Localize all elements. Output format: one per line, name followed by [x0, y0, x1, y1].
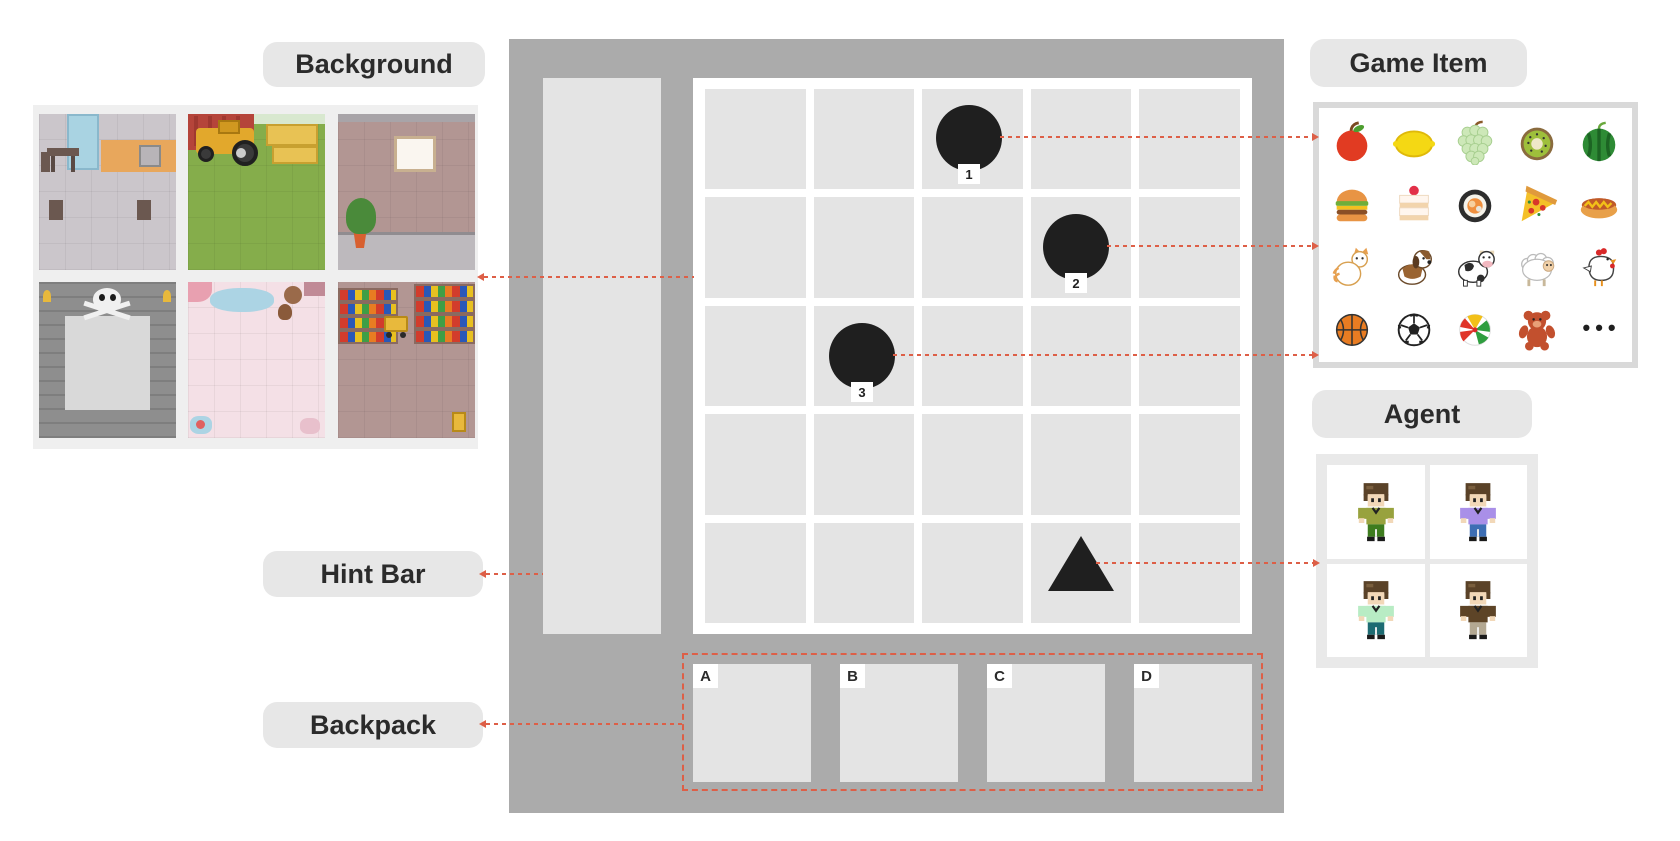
thumbnail-kitchen-dining-room[interactable] [39, 114, 176, 270]
hint-bar-label: Hint Bar [263, 551, 483, 597]
beach-ball-icon [1452, 305, 1498, 351]
item-hot-dog[interactable] [1568, 173, 1630, 235]
shelf-unit [414, 284, 475, 344]
board-cell[interactable] [814, 197, 915, 297]
hamburger-icon [1329, 181, 1375, 227]
item-soccer-ball[interactable] [1383, 297, 1445, 359]
board-cell[interactable] [1139, 197, 1240, 297]
item-basketball[interactable] [1321, 297, 1383, 359]
item-cow[interactable] [1445, 235, 1507, 297]
marker-circle-2[interactable] [1043, 214, 1109, 280]
board-cell[interactable] [1031, 89, 1132, 189]
dog-icon [1391, 243, 1437, 289]
grapes-icon [1452, 119, 1498, 165]
kiwi-icon [1514, 119, 1560, 165]
toy-shelf [304, 282, 325, 296]
board-cell[interactable] [1031, 414, 1132, 514]
item-cat[interactable] [1321, 235, 1383, 297]
window [394, 136, 436, 172]
dining-table [47, 148, 79, 156]
slot-d-tag: D [1134, 664, 1159, 688]
board-cell[interactable] [922, 414, 1023, 514]
cart-wheel [386, 332, 392, 338]
chair [137, 200, 151, 220]
backpack-slot-a[interactable]: A [693, 664, 811, 782]
cat-icon [1329, 243, 1375, 289]
agent-boy-brown-shirt[interactable] [1430, 564, 1528, 658]
thumbnail-room-wall-with-plant[interactable] [338, 114, 475, 270]
item-teddy-bear[interactable] [1506, 297, 1568, 359]
item-more[interactable]: ••• [1568, 297, 1630, 359]
item-cake[interactable] [1383, 173, 1445, 235]
board-cell[interactable] [705, 306, 806, 406]
item-chicken[interactable] [1568, 235, 1630, 297]
background-picker-panel [33, 105, 478, 449]
thumbnail-farm-with-tractor[interactable] [188, 114, 325, 270]
play-pond [210, 288, 274, 312]
chair [49, 200, 63, 220]
shopping-cart [384, 316, 408, 332]
arrowhead-right-icon [1312, 351, 1319, 359]
apple-icon [1329, 119, 1375, 165]
arrowhead-left-icon [479, 570, 486, 578]
boy-sprite-icon [1345, 479, 1407, 545]
arrowhead-right-icon [1313, 559, 1320, 567]
floor-tiles [39, 114, 176, 270]
soccer-ball-icon [1391, 305, 1437, 351]
thumbnail-dungeon-with-skull[interactable] [39, 282, 176, 438]
item-grapes[interactable] [1445, 111, 1507, 173]
agent-boy-green-shirt[interactable] [1327, 465, 1425, 559]
marker-circle-3[interactable] [829, 323, 895, 389]
tractor-wheel [198, 146, 214, 162]
board-cell[interactable] [922, 197, 1023, 297]
board-cell[interactable] [1139, 414, 1240, 514]
agent-label: Agent [1312, 390, 1532, 438]
agent-boy-mint-shirt[interactable] [1327, 564, 1425, 658]
toy-bunny [300, 418, 320, 434]
backpack-label: Backpack [263, 702, 483, 748]
item-pizza[interactable] [1506, 173, 1568, 235]
slot-a-tag: A [693, 664, 718, 688]
connector-background-to-board [484, 276, 694, 278]
marker-3-tag: 3 [851, 382, 873, 402]
arrowhead-left-icon [477, 273, 484, 281]
item-lemon[interactable] [1383, 111, 1445, 173]
cart-wheel [400, 332, 406, 338]
toy-ball [196, 420, 205, 429]
connector-marker1-to-items [1000, 136, 1312, 138]
arrowhead-right-icon [1312, 133, 1319, 141]
hint-bar [543, 78, 661, 634]
slot-c-tag: C [987, 664, 1012, 688]
agent-panel [1316, 454, 1538, 668]
board-cell[interactable] [922, 523, 1023, 623]
toy-doll [278, 304, 292, 320]
game-item-panel: ••• [1313, 102, 1638, 368]
sign-board [452, 412, 466, 432]
item-watermelon[interactable] [1568, 111, 1630, 173]
backpack-slot-b[interactable]: B [840, 664, 958, 782]
sheep-icon [1514, 243, 1560, 289]
connector-marker2-to-items [1107, 245, 1312, 247]
item-beach-ball[interactable] [1445, 297, 1507, 359]
arrowhead-right-icon [1312, 242, 1319, 250]
item-sheep[interactable] [1506, 235, 1568, 297]
arrowhead-left-icon [479, 720, 486, 728]
board-cell[interactable] [705, 523, 806, 623]
tractor-cab [218, 120, 240, 134]
marker-1-tag: 1 [958, 164, 980, 184]
cake-icon [1391, 181, 1437, 227]
thumbnail-pink-playroom[interactable] [188, 282, 325, 438]
chicken-icon [1576, 243, 1622, 289]
board-cell[interactable] [705, 89, 806, 189]
basketball-icon [1329, 305, 1375, 351]
wheel-hub [236, 148, 246, 158]
connector-hintbar-label [486, 573, 543, 575]
products-row [416, 331, 473, 342]
item-sushi[interactable] [1445, 173, 1507, 235]
marker-circle-1[interactable] [936, 105, 1002, 171]
skull-eye [99, 294, 105, 301]
hay-bale [272, 146, 318, 164]
backpack-slot-d[interactable]: D [1134, 664, 1252, 782]
board-cell[interactable] [1139, 523, 1240, 623]
wall-trim [338, 114, 475, 122]
teddy-bear-icon [1514, 305, 1560, 351]
slot-b-tag: B [840, 664, 865, 688]
table-leg [51, 156, 55, 172]
products-row [340, 304, 396, 314]
board-cell[interactable] [814, 89, 915, 189]
toy-bear [284, 286, 302, 304]
products-row [416, 316, 473, 327]
background-label: Background [263, 42, 485, 87]
connector-marker3-to-items [893, 354, 1312, 356]
backpack-slot-c[interactable]: C [987, 664, 1105, 782]
board-cell[interactable] [1139, 89, 1240, 189]
board-cell[interactable] [814, 414, 915, 514]
boy-sprite-icon [1447, 577, 1509, 643]
thumbnail-supermarket-shelves[interactable] [338, 282, 475, 438]
hot-dog-icon [1576, 181, 1622, 227]
skull-eye [110, 294, 116, 301]
connector-triangle-to-agents [1096, 562, 1313, 564]
torch [163, 290, 171, 302]
cow-icon [1452, 243, 1498, 289]
torch [43, 290, 51, 302]
board-cell[interactable] [814, 523, 915, 623]
more-items-ellipsis: ••• [1578, 315, 1621, 341]
watermelon-icon [1576, 119, 1622, 165]
plant-leaves [346, 198, 376, 234]
table-leg [71, 156, 75, 172]
chair [41, 152, 50, 172]
dungeon-floor [65, 316, 150, 410]
products-row [340, 290, 396, 300]
oven [139, 145, 161, 167]
products-row [416, 286, 473, 297]
board-cell[interactable] [705, 414, 806, 514]
pizza-icon [1514, 181, 1560, 227]
item-kiwi[interactable] [1506, 111, 1568, 173]
board-cell[interactable] [705, 197, 806, 297]
boy-sprite-icon [1447, 479, 1509, 545]
boy-sprite-icon [1345, 577, 1407, 643]
marker-2-tag: 2 [1065, 273, 1087, 293]
connector-backpack-label [486, 723, 682, 725]
item-dog[interactable] [1383, 235, 1445, 297]
item-apple[interactable] [1321, 111, 1383, 173]
agent-boy-purple-shirt[interactable] [1430, 465, 1528, 559]
sushi-icon [1452, 181, 1498, 227]
products-row [416, 301, 473, 312]
lemon-icon [1391, 119, 1437, 165]
item-hamburger[interactable] [1321, 173, 1383, 235]
game-item-label: Game Item [1310, 39, 1527, 87]
hay-bale [266, 124, 318, 146]
